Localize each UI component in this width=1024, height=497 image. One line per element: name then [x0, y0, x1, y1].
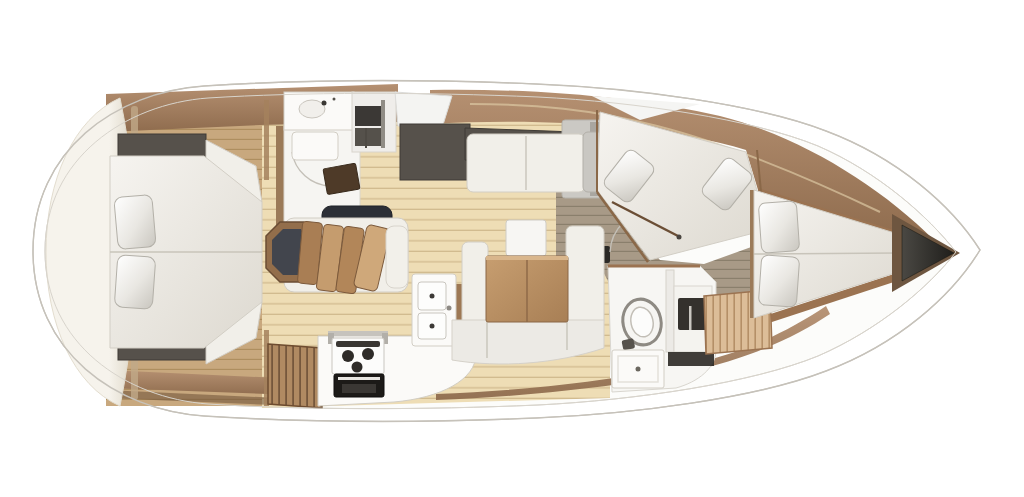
u-settee-arm-left: [462, 242, 488, 326]
basin-faucet-icon: [322, 101, 327, 106]
shelf-cubby-bottom: [355, 128, 381, 146]
drain-icon: [430, 294, 435, 299]
aft-pillow-starboard: [114, 255, 156, 310]
soap-dot-icon: [333, 98, 336, 101]
shelf-cubby-top: [355, 106, 381, 126]
vberth-pillow-port: [758, 201, 799, 254]
door-handle-icon: [677, 235, 682, 240]
washbasin: [299, 100, 325, 118]
head-divider: [666, 270, 674, 352]
companionway-steps: [268, 344, 322, 408]
oven-handle: [338, 377, 380, 380]
burner-icon: [342, 350, 354, 362]
deck-wedge: [395, 92, 452, 128]
aft-bulkhead-top: [264, 100, 269, 180]
saloon-table-highlight: [486, 256, 568, 260]
vanity-faucet-icon: [689, 306, 692, 330]
teak-shower-mat: [323, 163, 360, 194]
u-settee-arm-right: [566, 226, 604, 326]
shower-column: [381, 100, 385, 148]
vberth-pillow-starboard: [758, 255, 799, 308]
v-berth-seam: [754, 253, 898, 254]
stove-gimbal-rail: [328, 331, 388, 336]
yacht-floorplan-page: [0, 0, 1024, 497]
yacht-floorplan: [0, 0, 1024, 497]
u-settee-starboard: [452, 220, 604, 364]
stool: [506, 220, 546, 256]
stove-knob-strip: [336, 341, 380, 347]
burner-icon: [362, 348, 374, 360]
drain-icon: [430, 324, 435, 329]
toilet-lid: [292, 132, 338, 160]
drawer-knob-icon: [636, 367, 641, 372]
aft-pillow-port: [114, 194, 156, 249]
sink-faucet-icon: [447, 306, 452, 311]
locker-tall: [400, 124, 470, 180]
oven-window: [342, 384, 376, 393]
table-white-cap: [386, 226, 408, 288]
burner-icon: [352, 362, 363, 373]
